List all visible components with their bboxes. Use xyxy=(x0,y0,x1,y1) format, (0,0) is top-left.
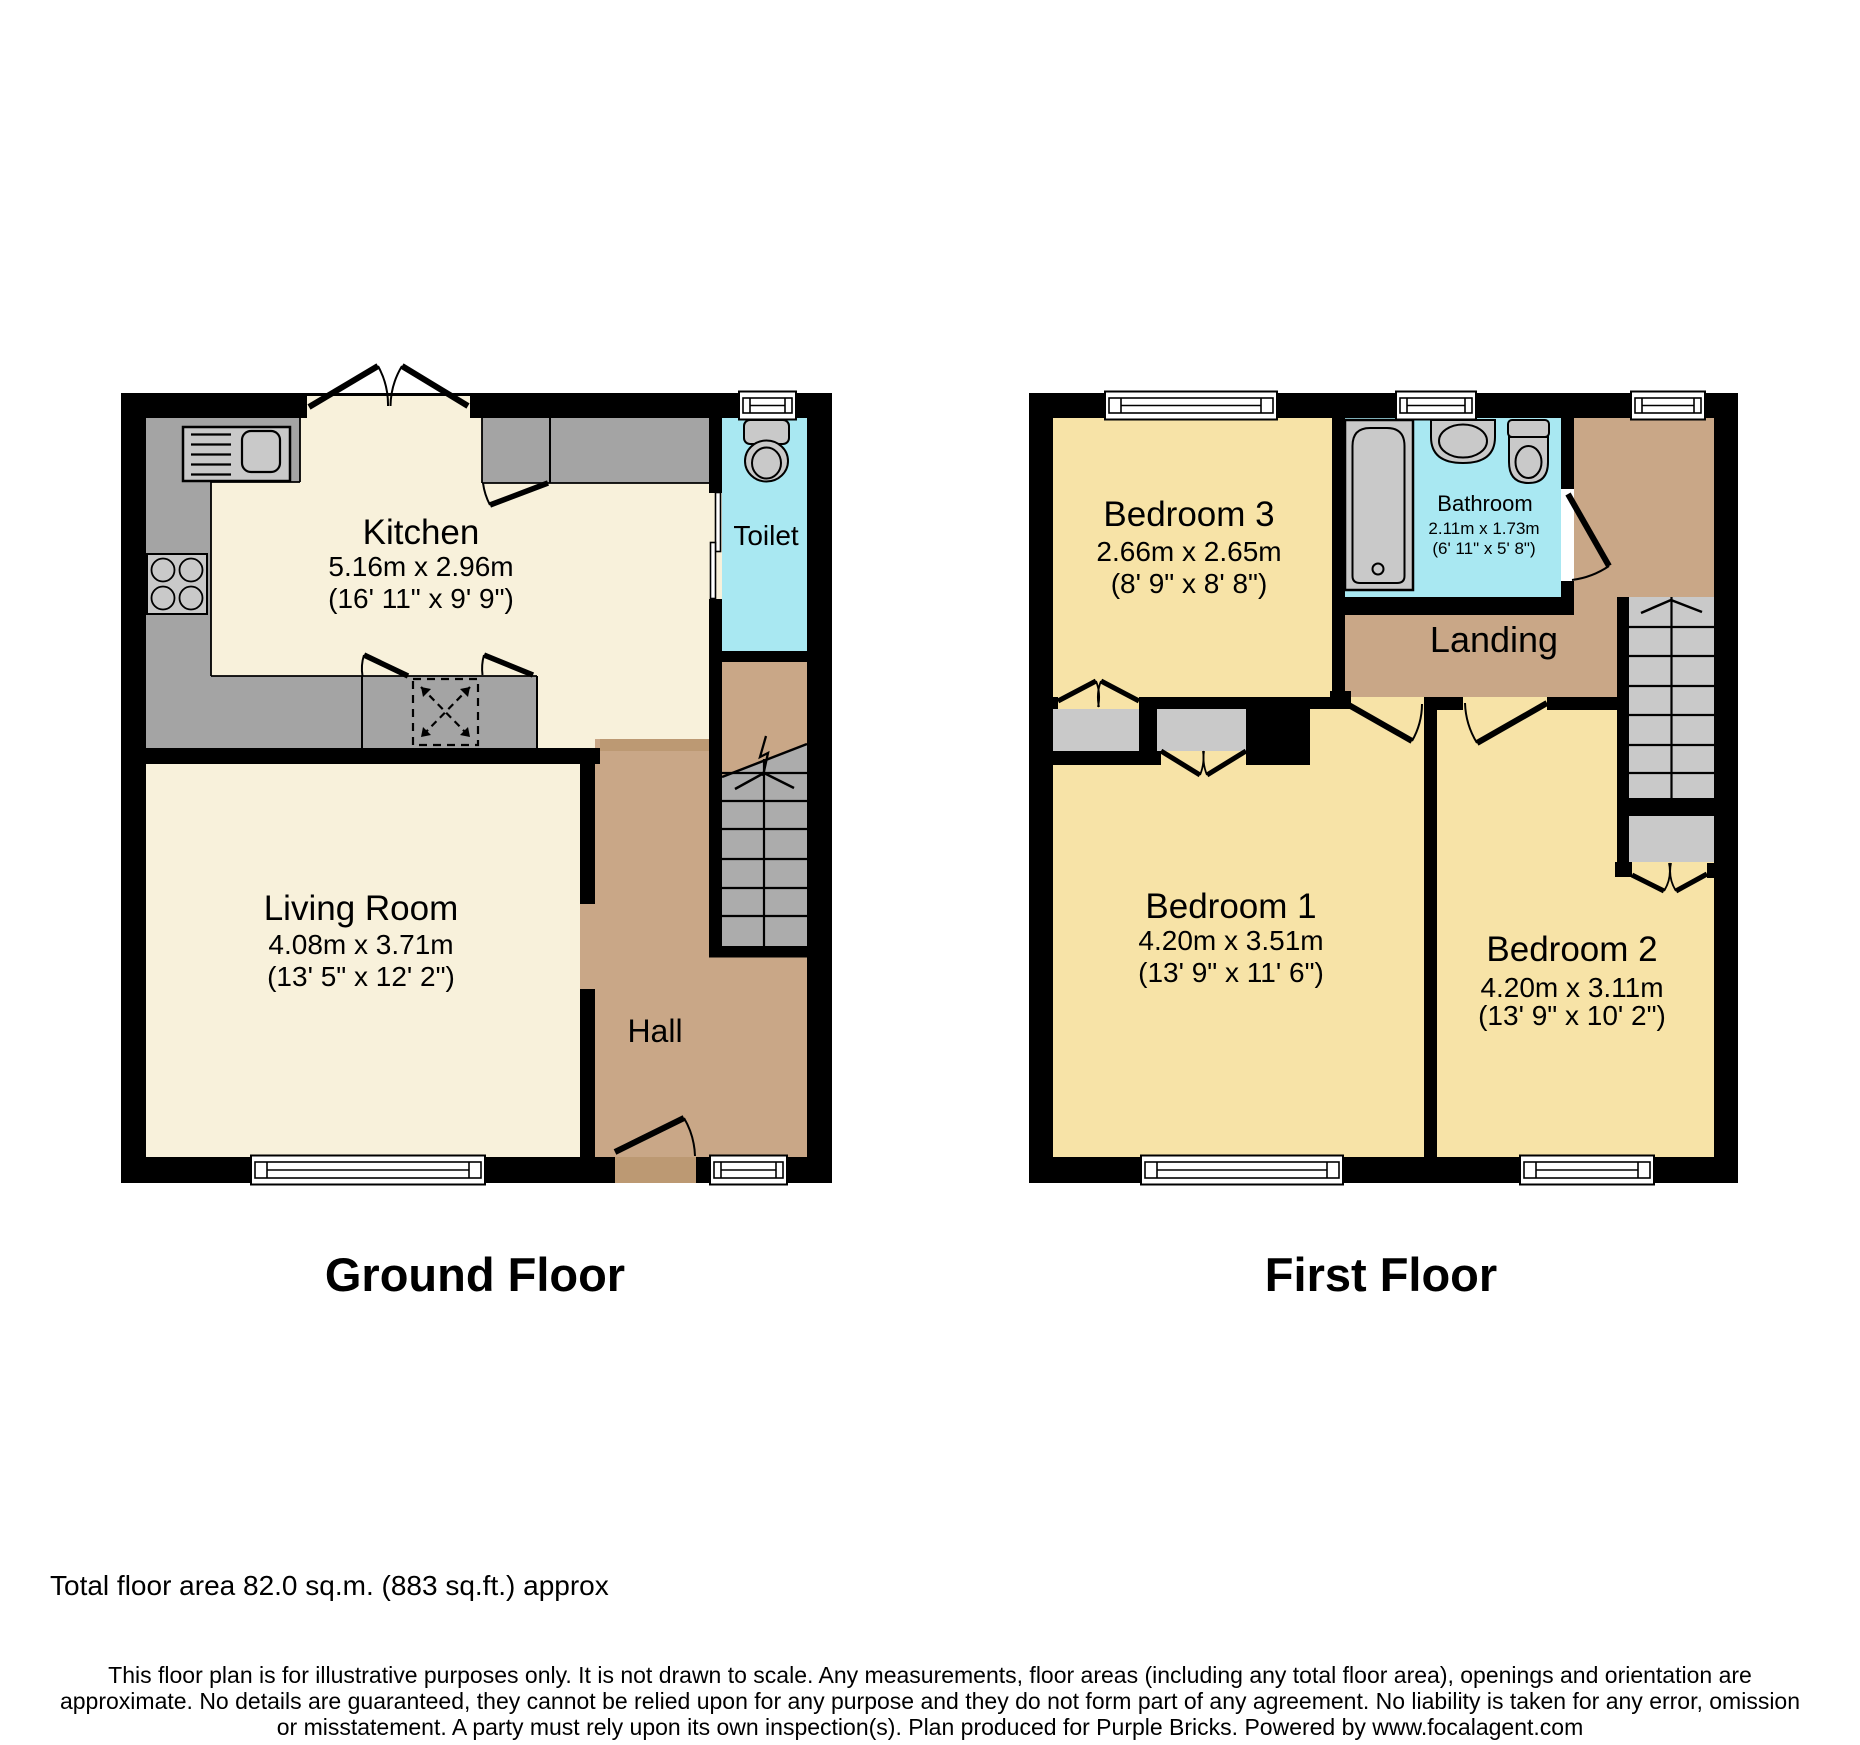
svg-text:(6' 11" x 5' 8"): (6' 11" x 5' 8") xyxy=(1432,539,1535,558)
svg-text:Hall: Hall xyxy=(627,1013,682,1049)
svg-text:Bedroom 1: Bedroom 1 xyxy=(1145,887,1316,926)
svg-text:Bedroom 3: Bedroom 3 xyxy=(1103,495,1274,534)
svg-text:Toilet: Toilet xyxy=(733,520,799,551)
svg-text:4.20m x 3.11m: 4.20m x 3.11m xyxy=(1480,972,1663,1003)
svg-text:2.11m x 1.73m: 2.11m x 1.73m xyxy=(1428,519,1539,538)
svg-text:Bathroom: Bathroom xyxy=(1437,491,1532,516)
svg-text:2.66m x 2.65m: 2.66m x 2.65m xyxy=(1096,536,1281,567)
svg-text:4.20m x 3.51m: 4.20m x 3.51m xyxy=(1138,925,1323,956)
svg-text:Living Room: Living Room xyxy=(264,889,459,928)
svg-text:This floor plan is for illustr: This floor plan is for illustrative purp… xyxy=(108,1662,1752,1688)
svg-text:(13' 9" x 10' 2"): (13' 9" x 10' 2") xyxy=(1478,1000,1666,1031)
svg-text:approximate. No details are gu: approximate. No details are guaranteed, … xyxy=(60,1688,1800,1714)
svg-text:5.16m x 2.96m: 5.16m x 2.96m xyxy=(328,551,513,582)
svg-text:(16' 11" x 9' 9"): (16' 11" x 9' 9") xyxy=(328,583,514,614)
svg-text:Ground Floor: Ground Floor xyxy=(325,1248,625,1301)
svg-text:Kitchen: Kitchen xyxy=(363,513,480,552)
svg-text:Landing: Landing xyxy=(1430,619,1558,660)
svg-text:Bedroom 2: Bedroom 2 xyxy=(1486,930,1657,969)
svg-text:First Floor: First Floor xyxy=(1265,1248,1497,1301)
svg-text:or misstatement. A party must: or misstatement. A party must rely upon … xyxy=(277,1714,1583,1740)
svg-text:(8' 9" x 8' 8"): (8' 9" x 8' 8") xyxy=(1111,568,1268,599)
svg-text:(13' 5" x 12' 2"): (13' 5" x 12' 2") xyxy=(267,961,455,992)
svg-text:4.08m x 3.71m: 4.08m x 3.71m xyxy=(268,929,453,960)
svg-text:Total floor area 82.0 sq.m. (8: Total floor area 82.0 sq.m. (883 sq.ft.)… xyxy=(50,1570,609,1601)
svg-text:(13' 9" x 11' 6"): (13' 9" x 11' 6") xyxy=(1138,957,1324,988)
